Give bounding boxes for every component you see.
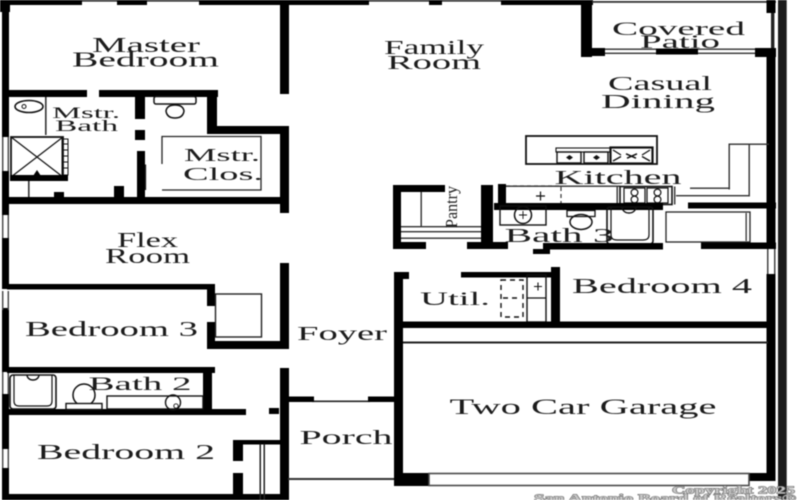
svg-text:Mstr.: Mstr. — [184, 145, 260, 165]
svg-text:Bedroom: Bedroom — [72, 48, 219, 72]
svg-text:Pantry: Pantry — [442, 186, 461, 228]
svg-text:Bedroom 4: Bedroom 4 — [572, 274, 753, 298]
svg-text:Bath 2: Bath 2 — [89, 374, 192, 395]
svg-text:Bedroom 2: Bedroom 2 — [37, 440, 215, 464]
svg-text:Porch: Porch — [300, 427, 393, 449]
svg-text:Foyer: Foyer — [297, 323, 388, 345]
svg-text:Patio: Patio — [640, 32, 720, 53]
svg-text:Bedroom 3: Bedroom 3 — [25, 317, 198, 341]
svg-text:Room: Room — [105, 244, 190, 268]
svg-text:Bath: Bath — [55, 118, 118, 135]
svg-text:Clos.: Clos. — [183, 164, 263, 184]
svg-text:Two Car Garage: Two Car Garage — [450, 394, 717, 419]
svg-text:San Antonio Board of Realtors®: San Antonio Board of Realtors® — [534, 494, 796, 500]
svg-text:Util.: Util. — [420, 289, 490, 310]
svg-text:Room: Room — [387, 52, 482, 74]
svg-text:Dining: Dining — [601, 91, 715, 113]
